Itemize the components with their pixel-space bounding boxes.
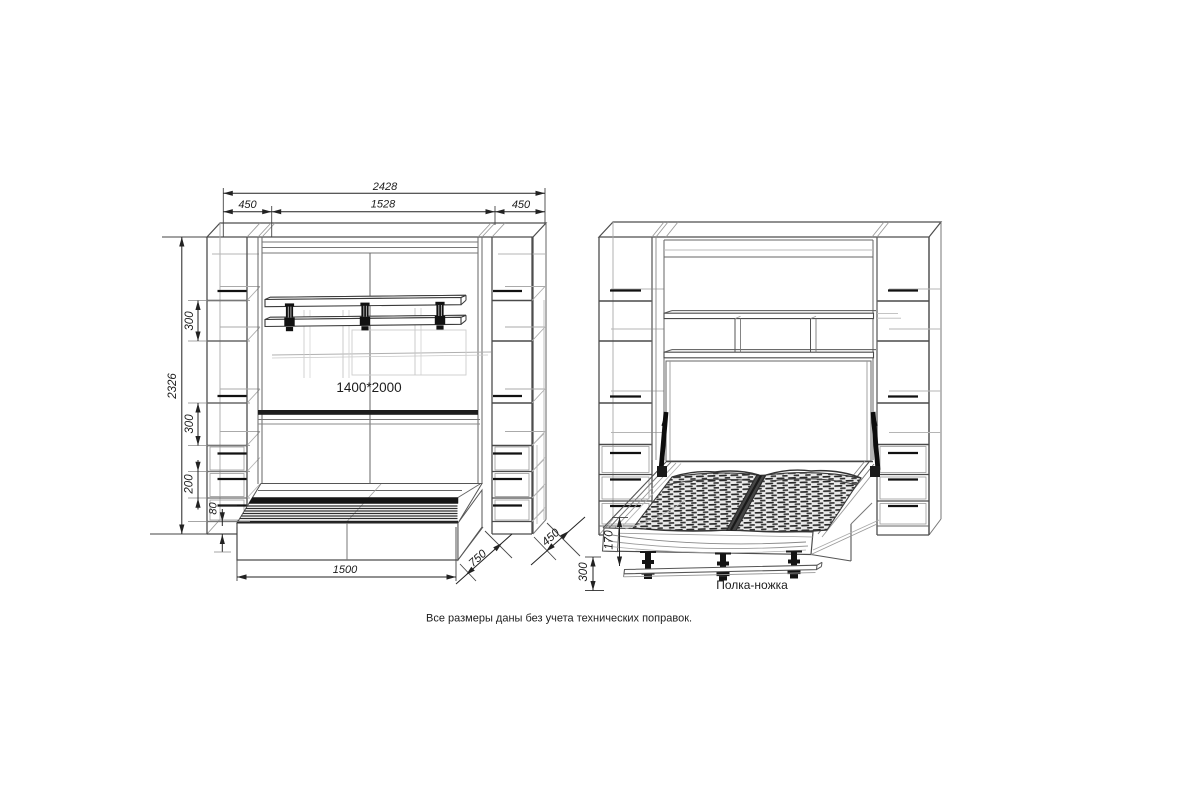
- svg-text:1528: 1528: [371, 199, 396, 211]
- svg-text:Полка-ножка: Полка-ножка: [716, 578, 788, 592]
- svg-text:1500: 1500: [333, 564, 358, 576]
- svg-text:300: 300: [184, 311, 196, 331]
- svg-text:300: 300: [184, 414, 196, 434]
- svg-text:300: 300: [578, 562, 590, 582]
- svg-text:2428: 2428: [372, 181, 398, 193]
- svg-text:2326: 2326: [167, 373, 179, 400]
- svg-text:450: 450: [512, 199, 531, 211]
- svg-text:450: 450: [238, 199, 257, 211]
- svg-text:170: 170: [604, 530, 616, 550]
- svg-text:200: 200: [184, 474, 196, 495]
- svg-text:Все размеры даны без учета тех: Все размеры даны без учета технических п…: [426, 613, 692, 625]
- svg-text:1400*2000: 1400*2000: [336, 380, 401, 395]
- svg-text:80: 80: [208, 502, 220, 515]
